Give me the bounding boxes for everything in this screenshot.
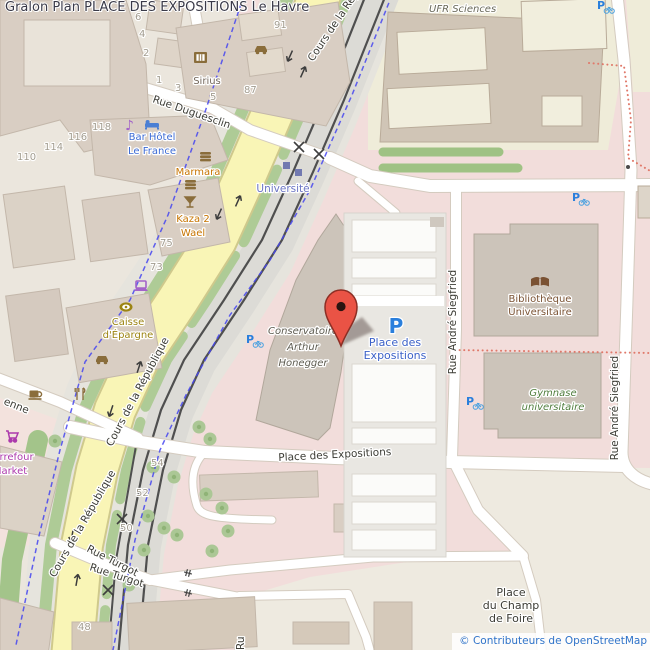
- svg-text:91: 91: [274, 20, 287, 31]
- svg-text:73: 73: [150, 262, 163, 273]
- parking-label-1: Place des: [369, 336, 421, 349]
- svg-text:52: 52: [136, 488, 149, 499]
- bicycle-parking-icon: P: [466, 395, 474, 408]
- page-title: Gralon Plan PLACE DES EXPOSITIONS Le Hav…: [5, 0, 309, 15]
- map-canvas[interactable]: ♪: [0, 0, 650, 650]
- svg-text:116: 116: [68, 132, 87, 143]
- poi-label-bar-hotel-2: Le France: [128, 146, 176, 157]
- street-label-siegfried-right: Rue André Siegfried: [609, 356, 621, 460]
- parking-icon: P: [389, 314, 404, 338]
- poi-label-sirius: Sirius: [193, 76, 221, 87]
- poi-label-caisse-1: Caisse: [112, 317, 144, 328]
- poi-label-carrefour-1: Carrefour: [0, 452, 34, 463]
- svg-text:3: 3: [175, 83, 181, 94]
- bicycle-parking-icon: P: [572, 191, 580, 204]
- tram-stop-label-universite: Université: [256, 183, 309, 195]
- svg-text:2: 2: [143, 48, 149, 59]
- svg-text:118: 118: [92, 122, 111, 133]
- osm-attribution-link[interactable]: © Contributeurs de OpenStreetMap: [452, 633, 650, 650]
- bicycle-parking-icon: P: [246, 333, 254, 346]
- parking-label-2: Expositions: [364, 349, 427, 362]
- svg-text:5: 5: [210, 92, 216, 103]
- poi-label-carrefour-2: Market: [0, 466, 27, 477]
- poi-label-ufr: UFR Sciences: [429, 4, 496, 15]
- restaurant-burger-icon: [185, 180, 196, 189]
- svg-text:50: 50: [120, 523, 133, 534]
- place-label-champ-1: Place: [496, 586, 525, 599]
- restaurant-burger-icon: [200, 152, 211, 161]
- poi-label-conservatoire-3: Honegger: [278, 358, 328, 369]
- svg-text:1: 1: [156, 75, 162, 86]
- poi-label-gymnase-2: universitaire: [522, 402, 585, 413]
- poi-label-conservatoire-2: Arthur: [286, 342, 320, 353]
- place-label-champ-3: de Foire: [489, 612, 533, 625]
- parking-lot: [344, 213, 446, 557]
- poi-label-bibliotheque-1: Bibliothèque: [509, 293, 572, 305]
- bank-coin-icon: [120, 302, 133, 311]
- poi-label-bar-hotel-1: Bar Hôtel: [129, 131, 176, 143]
- svg-text:75: 75: [160, 238, 173, 249]
- bollard-icon: [626, 165, 630, 169]
- street-label-siegfried-left: Rue André Siegfried: [447, 270, 459, 374]
- poi-label-marmara: Marmara: [176, 167, 221, 178]
- poi-label-kaza-1: Kaza 2: [176, 214, 209, 225]
- poi-label-gymnase-1: Gymnase: [529, 388, 576, 399]
- street-label-ru-fragment: Ru: [235, 637, 247, 650]
- map-svg: ♪: [0, 0, 650, 650]
- svg-text:110: 110: [17, 152, 36, 163]
- poi-label-conservatoire-1: Conservatoire: [268, 326, 338, 337]
- svg-text:4: 4: [139, 29, 145, 40]
- place-label-champ-2: du Champ: [483, 599, 540, 612]
- svg-text:114: 114: [44, 142, 63, 153]
- svg-text:87: 87: [244, 85, 257, 96]
- poi-label-bibliotheque-2: Universitaire: [508, 307, 571, 318]
- svg-text:54: 54: [151, 458, 164, 469]
- cinema-film-icon: [194, 52, 207, 63]
- poi-label-caisse-2: d'Épargne: [103, 328, 154, 341]
- svg-text:48: 48: [78, 622, 91, 633]
- poi-label-kaza-2: Wael: [181, 228, 205, 239]
